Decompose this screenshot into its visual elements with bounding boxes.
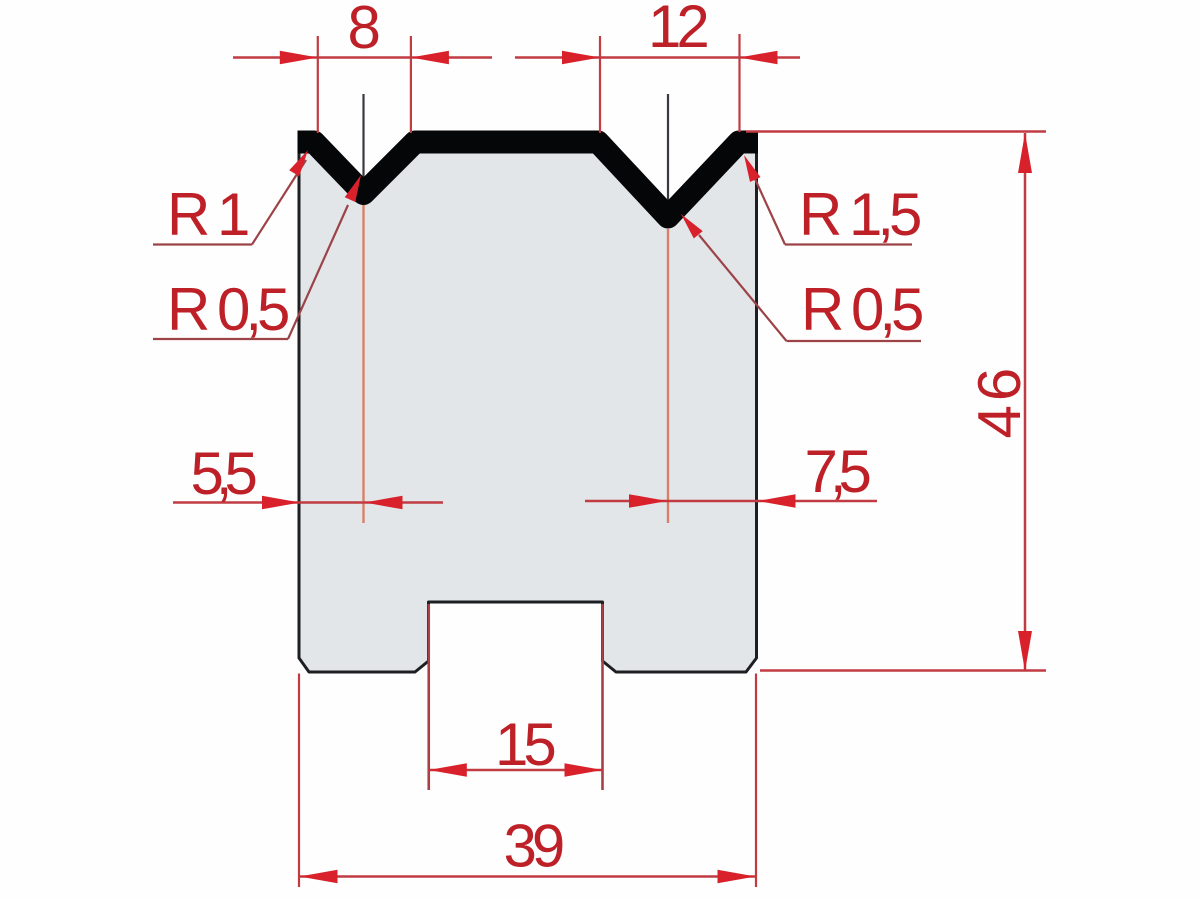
svg-text:5,5: 5,5: [191, 440, 256, 507]
svg-text:R 0,5: R 0,5: [167, 276, 288, 343]
svg-text:39: 39: [504, 813, 563, 880]
svg-text:R 1: R 1: [167, 181, 248, 248]
svg-text:R 1,5: R 1,5: [799, 181, 920, 248]
svg-text:R 0,5: R 0,5: [801, 276, 922, 343]
svg-text:46: 46: [966, 364, 1033, 439]
svg-text:12: 12: [648, 0, 707, 60]
svg-text:8: 8: [348, 0, 381, 61]
svg-text:15: 15: [495, 711, 554, 778]
svg-text:7,5: 7,5: [805, 438, 870, 505]
